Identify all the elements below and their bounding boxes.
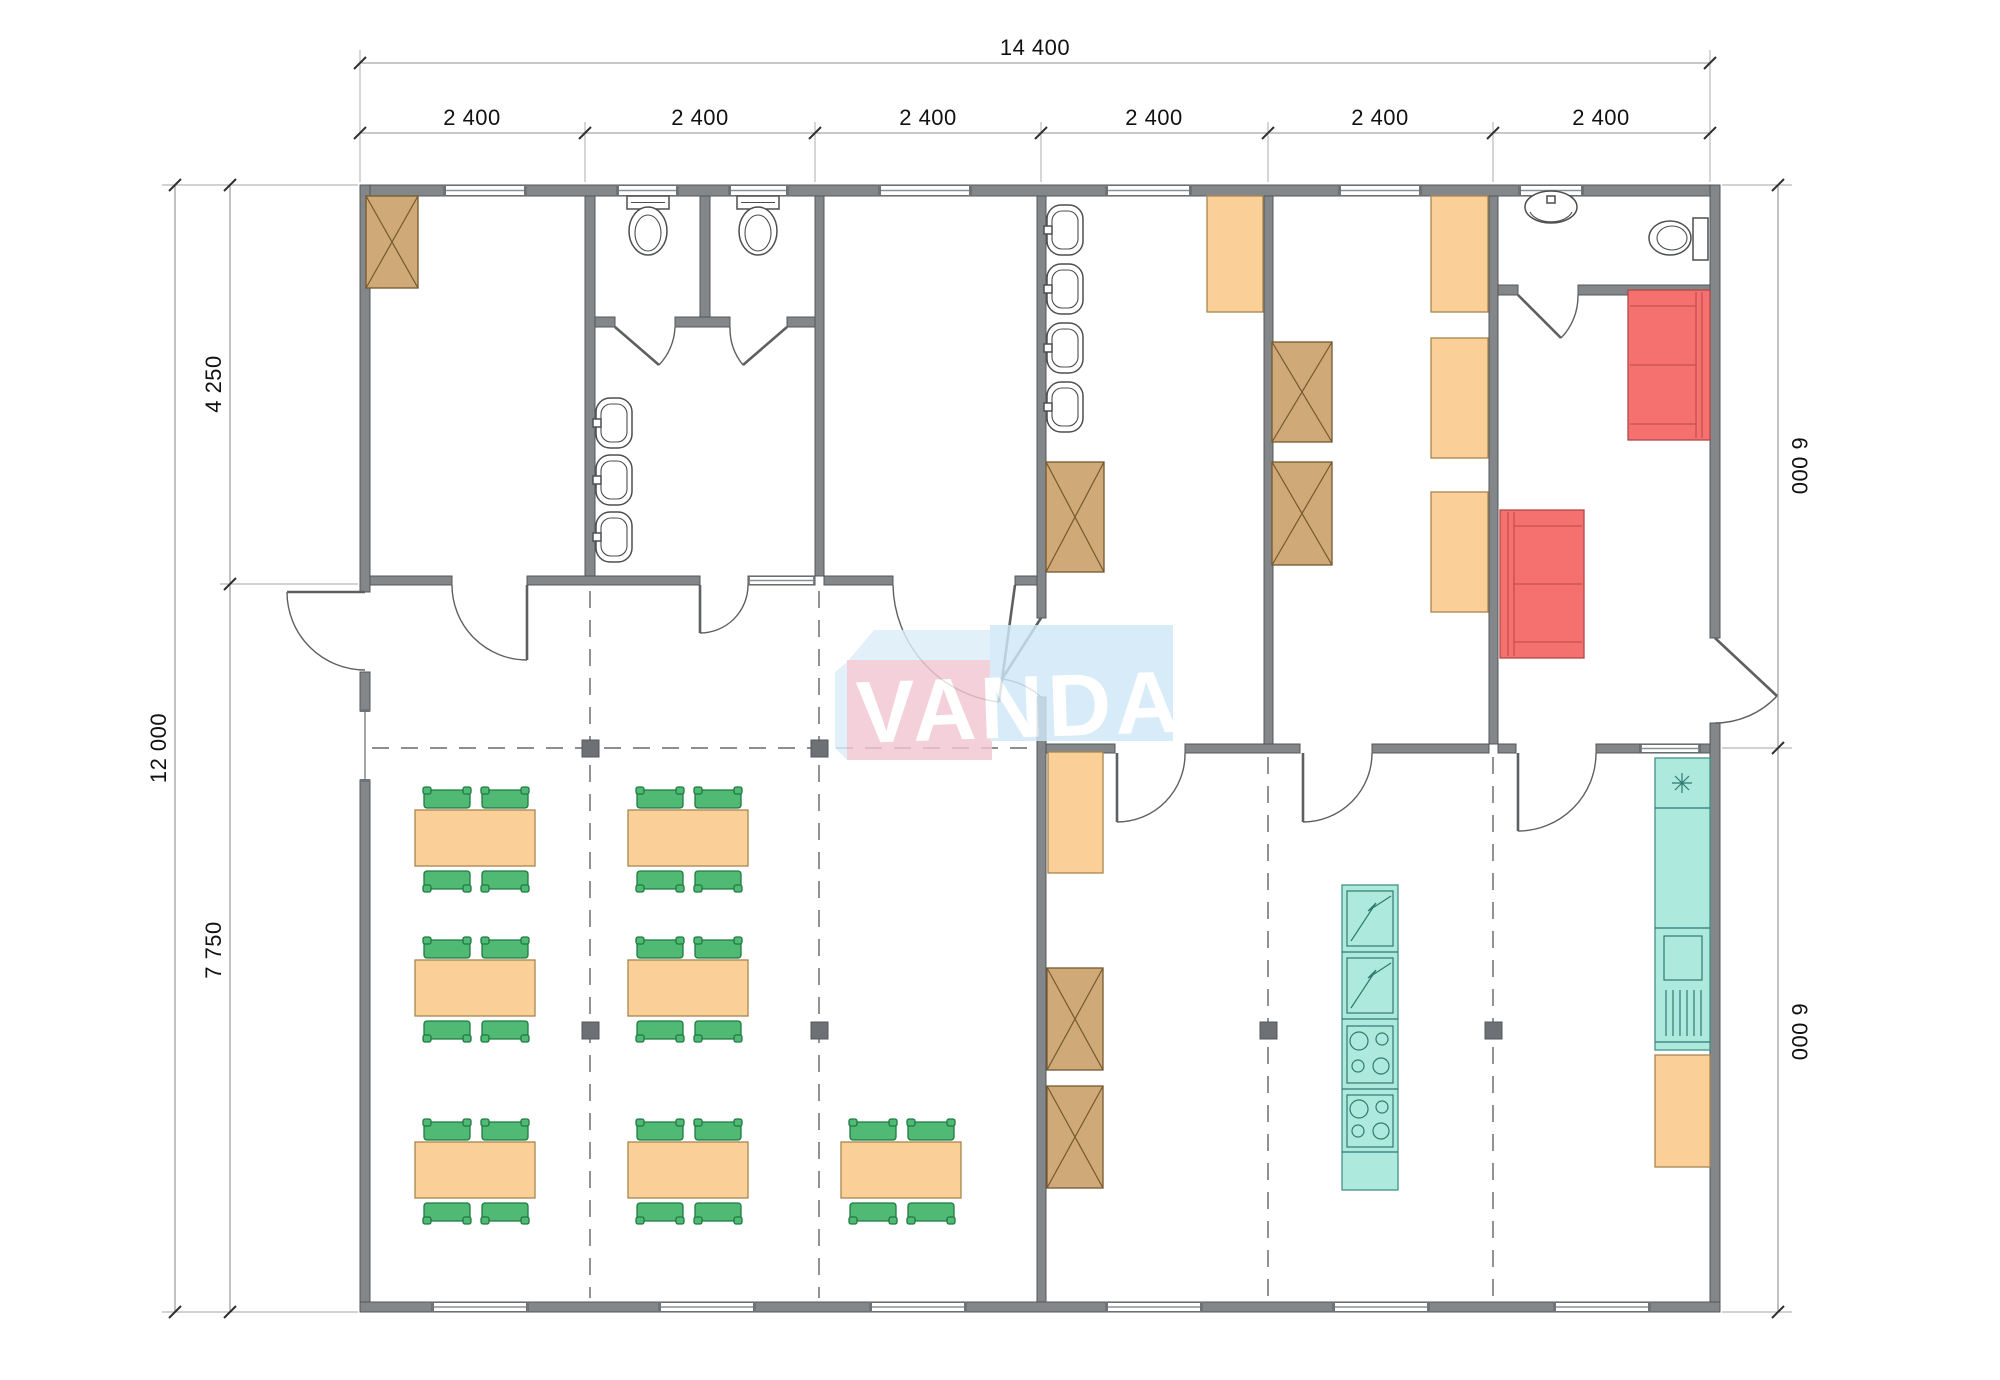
window xyxy=(1332,1302,1430,1312)
dining-set xyxy=(415,787,535,892)
window xyxy=(431,1302,529,1312)
dim-module-1: 2 400 xyxy=(443,105,501,130)
toilet xyxy=(737,196,779,255)
dining-set xyxy=(415,1119,535,1224)
window xyxy=(443,185,527,196)
room-changing-1 xyxy=(1044,196,1263,572)
wardrobe xyxy=(1272,342,1332,442)
dim-left-lower: 7 750 xyxy=(201,921,226,979)
dim-module-6: 2 400 xyxy=(1572,105,1630,130)
door xyxy=(615,327,675,365)
dim-module-5: 2 400 xyxy=(1351,105,1409,130)
wash-basin xyxy=(1044,264,1083,314)
exterior-door xyxy=(1715,638,1777,723)
wash-basin xyxy=(593,512,632,562)
door xyxy=(452,585,527,660)
door xyxy=(1117,753,1185,822)
interior-window xyxy=(750,577,813,584)
dim-total-width: 14 400 xyxy=(1000,35,1070,60)
dining-table xyxy=(415,960,535,1016)
locker xyxy=(1207,196,1263,312)
watermark-text: VANDA xyxy=(855,652,1185,762)
door xyxy=(1518,295,1578,338)
window xyxy=(1553,1302,1651,1312)
sofa xyxy=(1500,510,1584,658)
wardrobe xyxy=(1047,1086,1103,1188)
serving-hatch xyxy=(1642,745,1698,752)
dining-set xyxy=(415,937,535,1042)
door xyxy=(700,585,748,633)
dining-set xyxy=(628,1119,748,1224)
dining-table xyxy=(415,810,535,866)
pedestal-sink xyxy=(1525,191,1577,223)
floor-plan-sheet: 14 400 2 400 2 400 2 400 2 400 2 400 2 4… xyxy=(0,0,2000,1380)
watermark: VANDA xyxy=(835,625,1184,762)
room-washroom-left xyxy=(593,196,779,562)
window xyxy=(616,185,679,196)
locker xyxy=(1431,196,1488,312)
window xyxy=(1105,185,1192,196)
dim-module-3: 2 400 xyxy=(899,105,957,130)
dimension-top: 14 400 2 400 2 400 2 400 2 400 2 400 2 4… xyxy=(354,35,1716,182)
wash-basin xyxy=(593,398,632,448)
bench xyxy=(1048,752,1103,873)
counter-orange xyxy=(1655,1055,1710,1167)
dimension-right: 6 000 6 000 xyxy=(1722,179,1812,1318)
wash-basin xyxy=(1044,323,1083,373)
kitchen-counter xyxy=(1655,758,1710,1050)
dining-table xyxy=(628,810,748,866)
floor-plan-drawing: 14 400 2 400 2 400 2 400 2 400 2 400 2 4… xyxy=(0,0,2000,1380)
dim-module-4: 2 400 xyxy=(1125,105,1183,130)
column-marker xyxy=(811,1022,828,1039)
column-marker xyxy=(1485,1022,1502,1039)
toilet xyxy=(627,196,669,255)
dining-set xyxy=(628,787,748,892)
window xyxy=(728,185,789,196)
dim-right-lower: 6 000 xyxy=(1787,1003,1812,1061)
wardrobe xyxy=(1272,462,1332,565)
dining-table xyxy=(628,1142,748,1198)
dining-table xyxy=(628,960,748,1016)
column-marker xyxy=(582,1022,599,1039)
column-marker xyxy=(582,740,599,757)
sofa xyxy=(1628,290,1710,440)
door xyxy=(730,327,787,365)
dim-right-upper: 6 000 xyxy=(1787,437,1812,495)
dining-table xyxy=(841,1142,961,1198)
room-storage xyxy=(366,196,418,288)
door xyxy=(1518,753,1596,831)
window xyxy=(658,1302,756,1312)
wash-basin xyxy=(1044,205,1083,255)
column-marker xyxy=(1260,1022,1277,1039)
dining-hall xyxy=(415,787,961,1224)
door xyxy=(1303,753,1372,822)
column-marker xyxy=(811,740,828,757)
kitchen-island xyxy=(1342,885,1398,1190)
window xyxy=(869,1302,967,1312)
dining-set xyxy=(628,937,748,1042)
wardrobe xyxy=(1047,968,1103,1070)
kitchen-room xyxy=(1047,752,1710,1190)
wardrobe xyxy=(366,196,418,288)
dim-module-2: 2 400 xyxy=(671,105,729,130)
locker xyxy=(1431,338,1488,458)
window xyxy=(1338,185,1422,196)
dining-table xyxy=(415,1142,535,1198)
toilet xyxy=(1649,218,1708,260)
window xyxy=(1105,1302,1203,1312)
wardrobe xyxy=(1046,462,1104,572)
wash-basin xyxy=(593,455,632,505)
dim-left-upper: 4 250 xyxy=(201,355,226,413)
window xyxy=(878,185,972,196)
exterior-door xyxy=(287,592,365,670)
sink-star-icon xyxy=(1672,773,1692,793)
dining-set xyxy=(841,1119,961,1224)
wash-basin xyxy=(1044,382,1083,432)
room-lounge xyxy=(1500,191,1710,658)
window xyxy=(360,709,370,782)
room-changing-2 xyxy=(1272,196,1488,612)
dim-total-height: 12 000 xyxy=(146,713,171,783)
dimension-left: 12 000 4 250 7 750 xyxy=(146,179,358,1318)
locker xyxy=(1431,492,1488,612)
